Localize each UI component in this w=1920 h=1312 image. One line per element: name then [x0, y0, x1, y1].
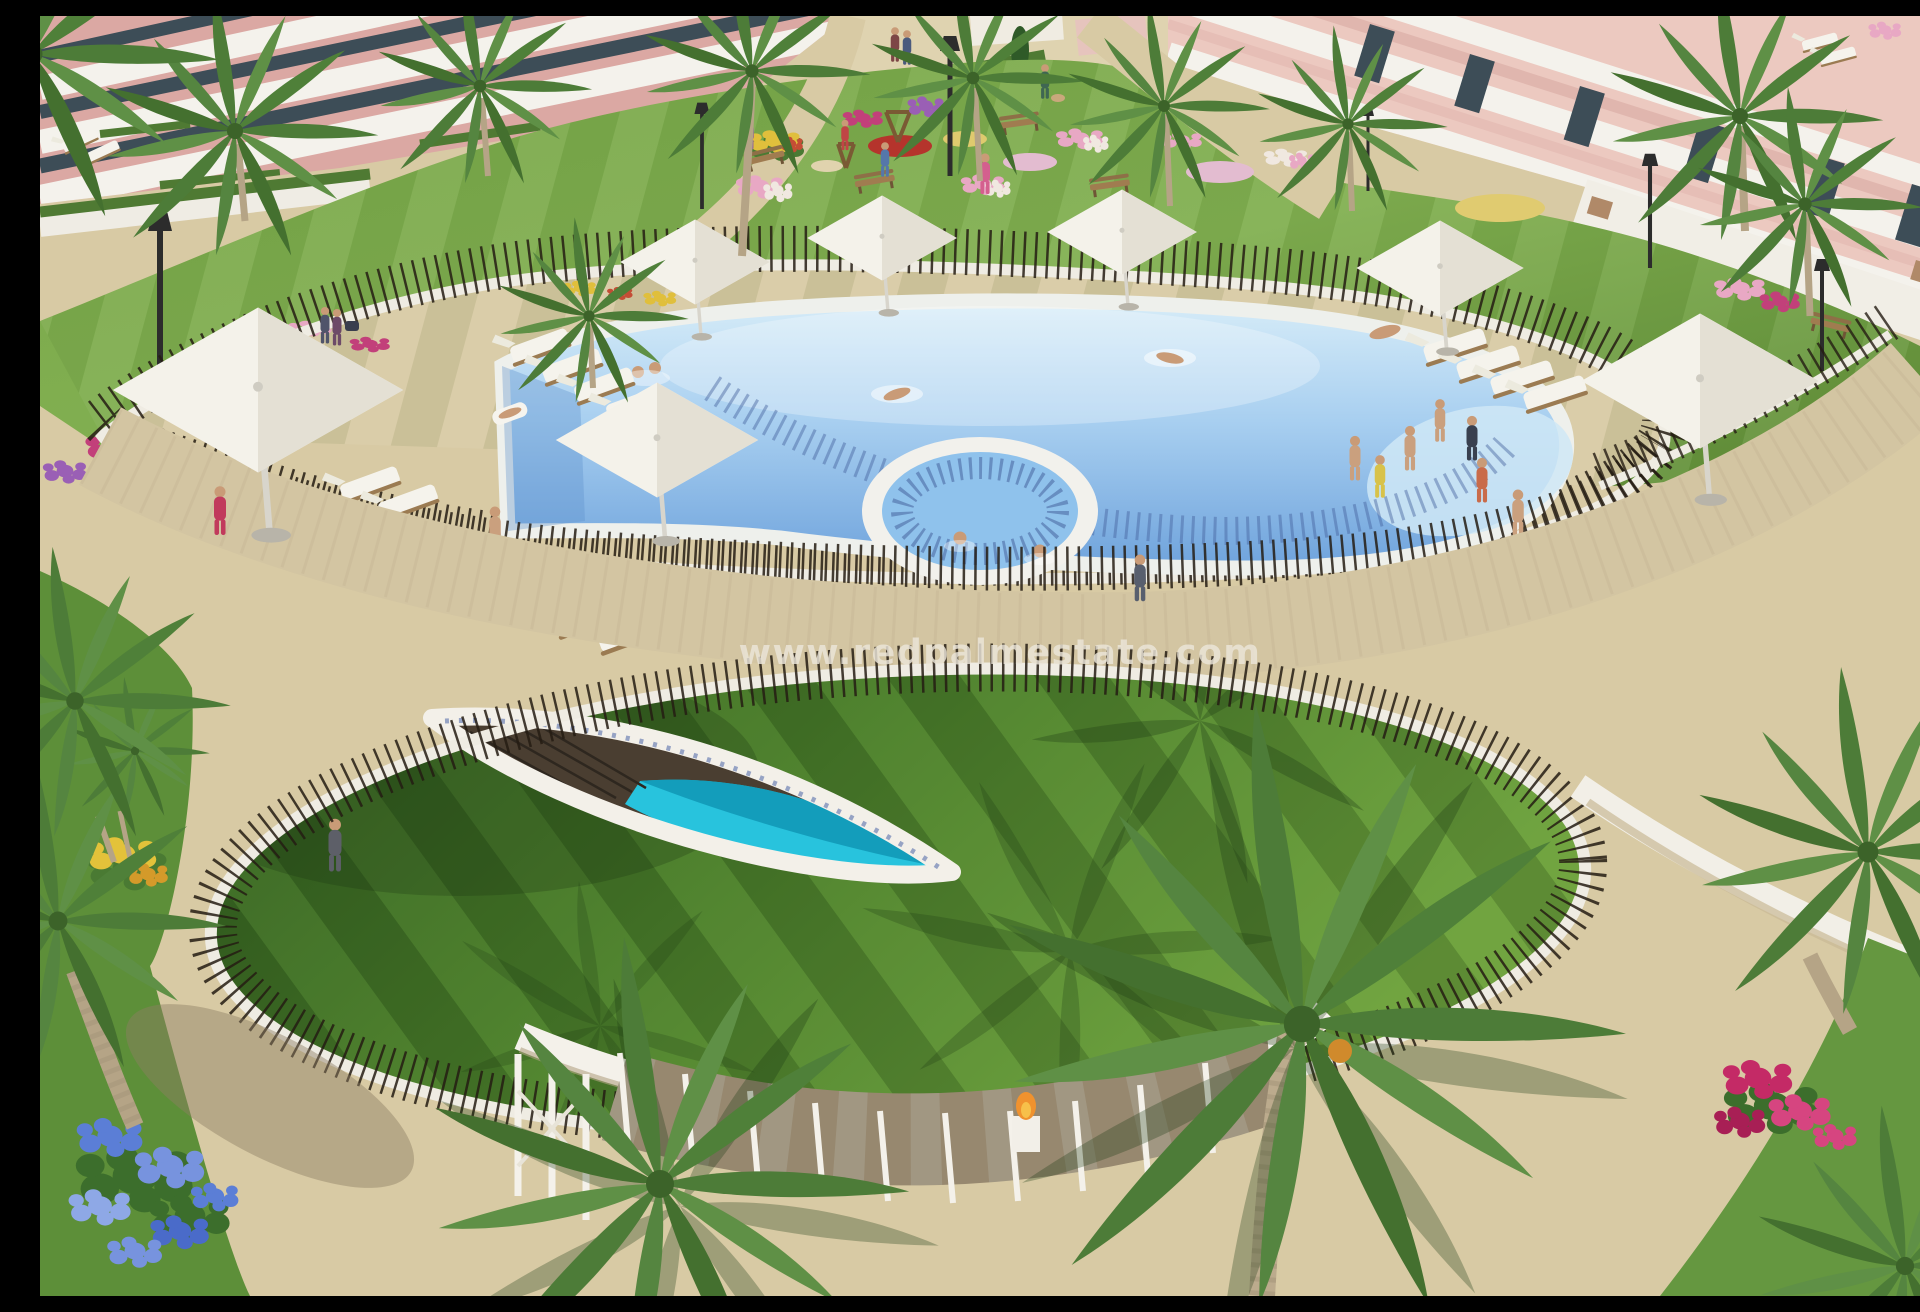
resort-render-image: www.redpalmestate.com [40, 16, 1920, 1296]
stroller [345, 321, 359, 331]
spa-pool [862, 437, 1098, 585]
play-circle-yellow [1455, 194, 1545, 222]
dog [1051, 94, 1065, 102]
watermark: www.redpalmestate.com [739, 633, 1262, 673]
render-canvas: www.redpalmestate.com [40, 16, 1920, 1296]
palm-fruit [1328, 1039, 1352, 1063]
